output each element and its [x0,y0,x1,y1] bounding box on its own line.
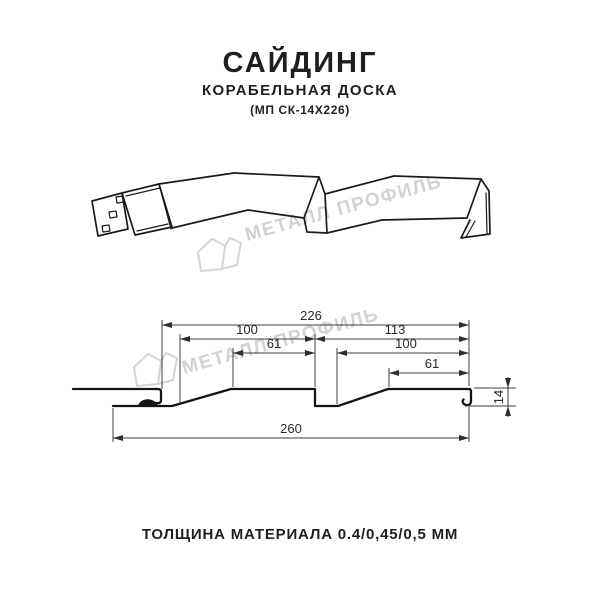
end-fold-inner-line [486,193,487,233]
dim-label-height: 14 [491,390,506,404]
lock-fold-inner-line [126,188,171,229]
dim-label-right-pitch: 113 [385,322,406,337]
dim-label-right-flat: 61 [425,356,439,371]
board-top-1 [234,173,319,218]
dim-label-top-overall: 226 [300,308,322,323]
nail-strip-hole [102,225,110,232]
brand-logo-icon [134,354,161,386]
dim-label-left-flat: 61 [267,336,281,351]
dim-label-right-inner: 100 [395,336,417,351]
lock-fold-inner-line [137,224,168,231]
dim-label-left-pitch: 100 [236,322,258,337]
product-sheet: САЙДИНГ КОРАБЕЛЬНАЯ ДОСКА (МП СК-14Х226)… [0,0,600,600]
thickness-note: ТОЛЩИНА МАТЕРИАЛА 0.4/0,45/0,5 ММ [0,526,600,543]
lock-hook [138,399,158,406]
watermark-section: МЕТАЛЛ ПРОФИЛЬ [134,304,381,386]
watermark-text: МЕТАЛЛ ПРОФИЛЬ [243,171,445,246]
dim-label-bottom-overall: 260 [280,421,302,436]
profile-outline [113,389,471,406]
brand-logo-icon [198,239,225,271]
watermark-3d: МЕТАЛЛ ПРОФИЛЬ [198,171,444,271]
nail-strip-hole [109,211,117,218]
end-fold [461,179,490,238]
slope-face-1 [159,173,248,228]
technical-drawing-svg: МЕТАЛЛ ПРОФИЛЬ МЕТАЛЛ ПРОФИЛЬ [0,0,600,600]
